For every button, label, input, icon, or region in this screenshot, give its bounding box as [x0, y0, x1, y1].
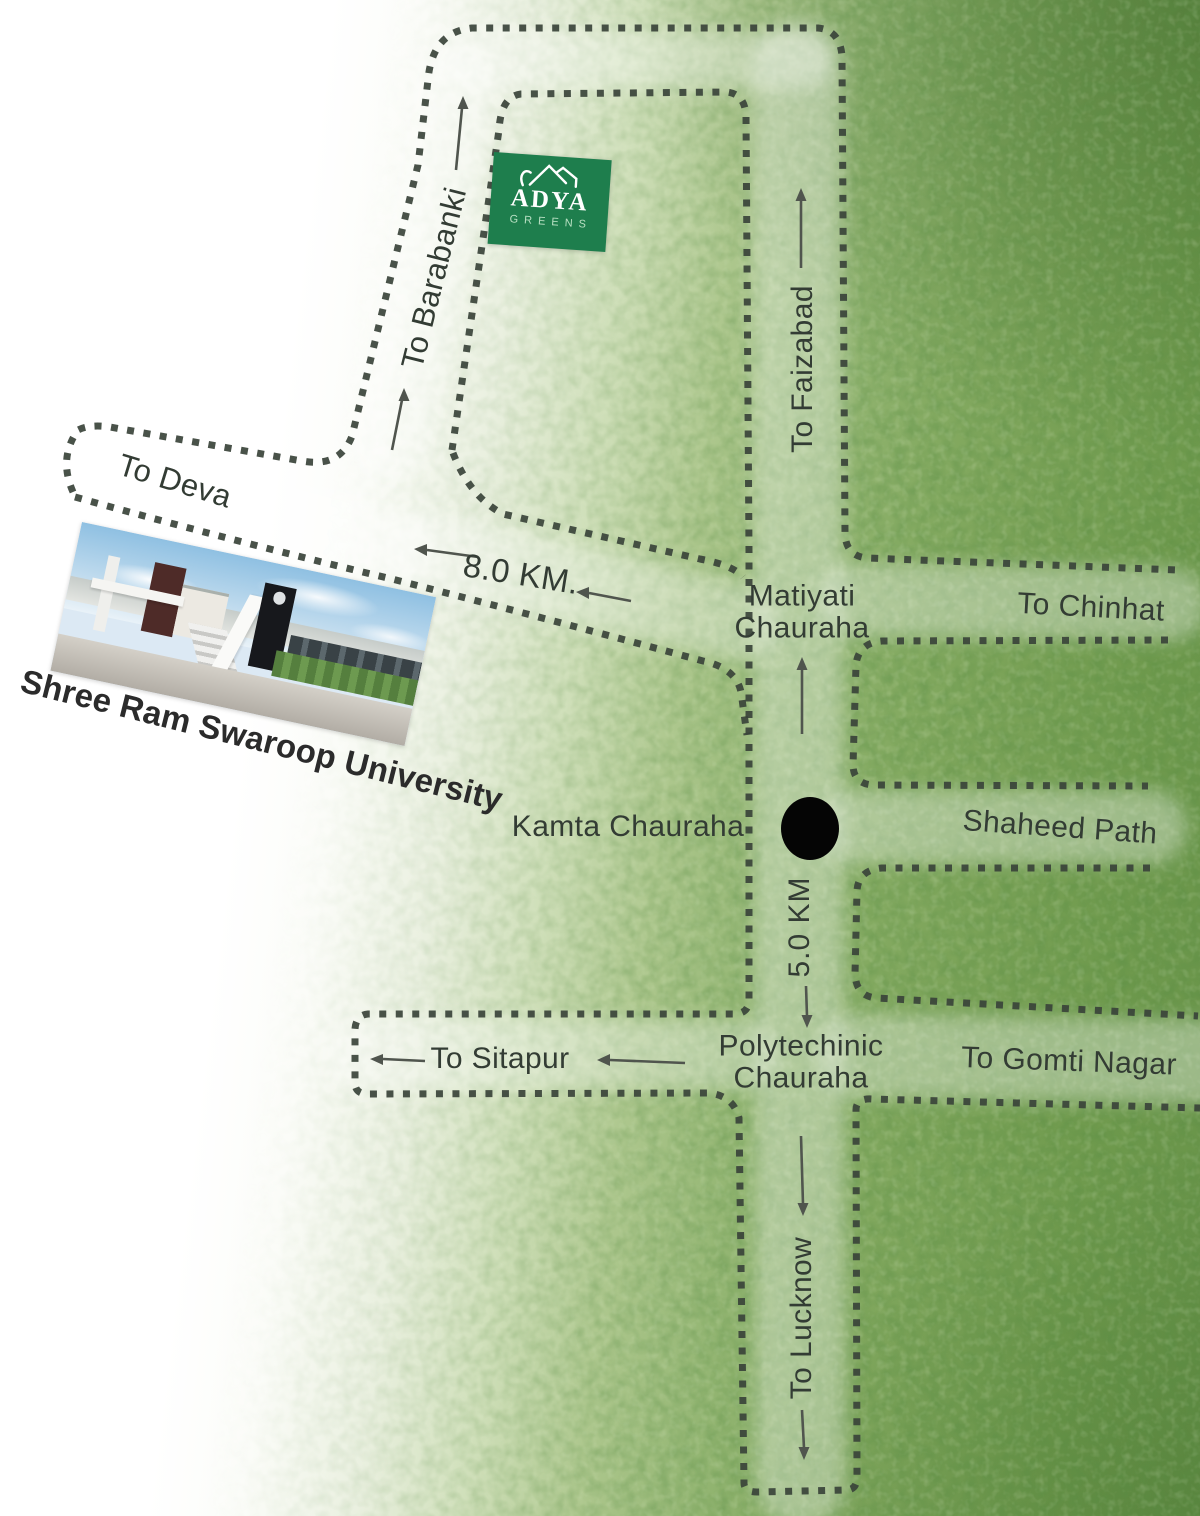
road-corridor-highlights	[80, 60, 1200, 1482]
location-map: Shree Ram Swaroop University ADYA GREENS…	[0, 0, 1200, 1516]
logo-brand-text: ADYA	[510, 185, 589, 215]
road-shaheed-gomti-edge	[855, 868, 1198, 1016]
label-polytechinic-line2: Chauraha	[719, 1063, 884, 1095]
label-matiyati-line2: Chauraha	[735, 613, 870, 645]
label-distance-5km: 5.0 KM	[784, 876, 816, 977]
label-to-lucknow: To Lucknow	[786, 1237, 818, 1399]
road-chinhat-shaheed-edge	[853, 640, 1168, 786]
kamta-junction-marker	[781, 797, 839, 860]
label-to-faizabad: To Faizabad	[787, 285, 819, 453]
label-matiyati-chauraha: Matiyati Chauraha	[735, 581, 870, 646]
label-polytechinic-line1: Polytechinic	[719, 1031, 884, 1063]
label-matiyati-line1: Matiyati	[735, 581, 870, 613]
label-to-sitapur: To Sitapur	[430, 1043, 569, 1075]
adya-greens-logo: ADYA GREENS	[488, 152, 612, 252]
label-polytechinic-chauraha: Polytechinic Chauraha	[719, 1031, 884, 1096]
dotted-road-edges	[67, 28, 1200, 1492]
label-kamta-chauraha: Kamta Chauraha	[512, 811, 744, 843]
